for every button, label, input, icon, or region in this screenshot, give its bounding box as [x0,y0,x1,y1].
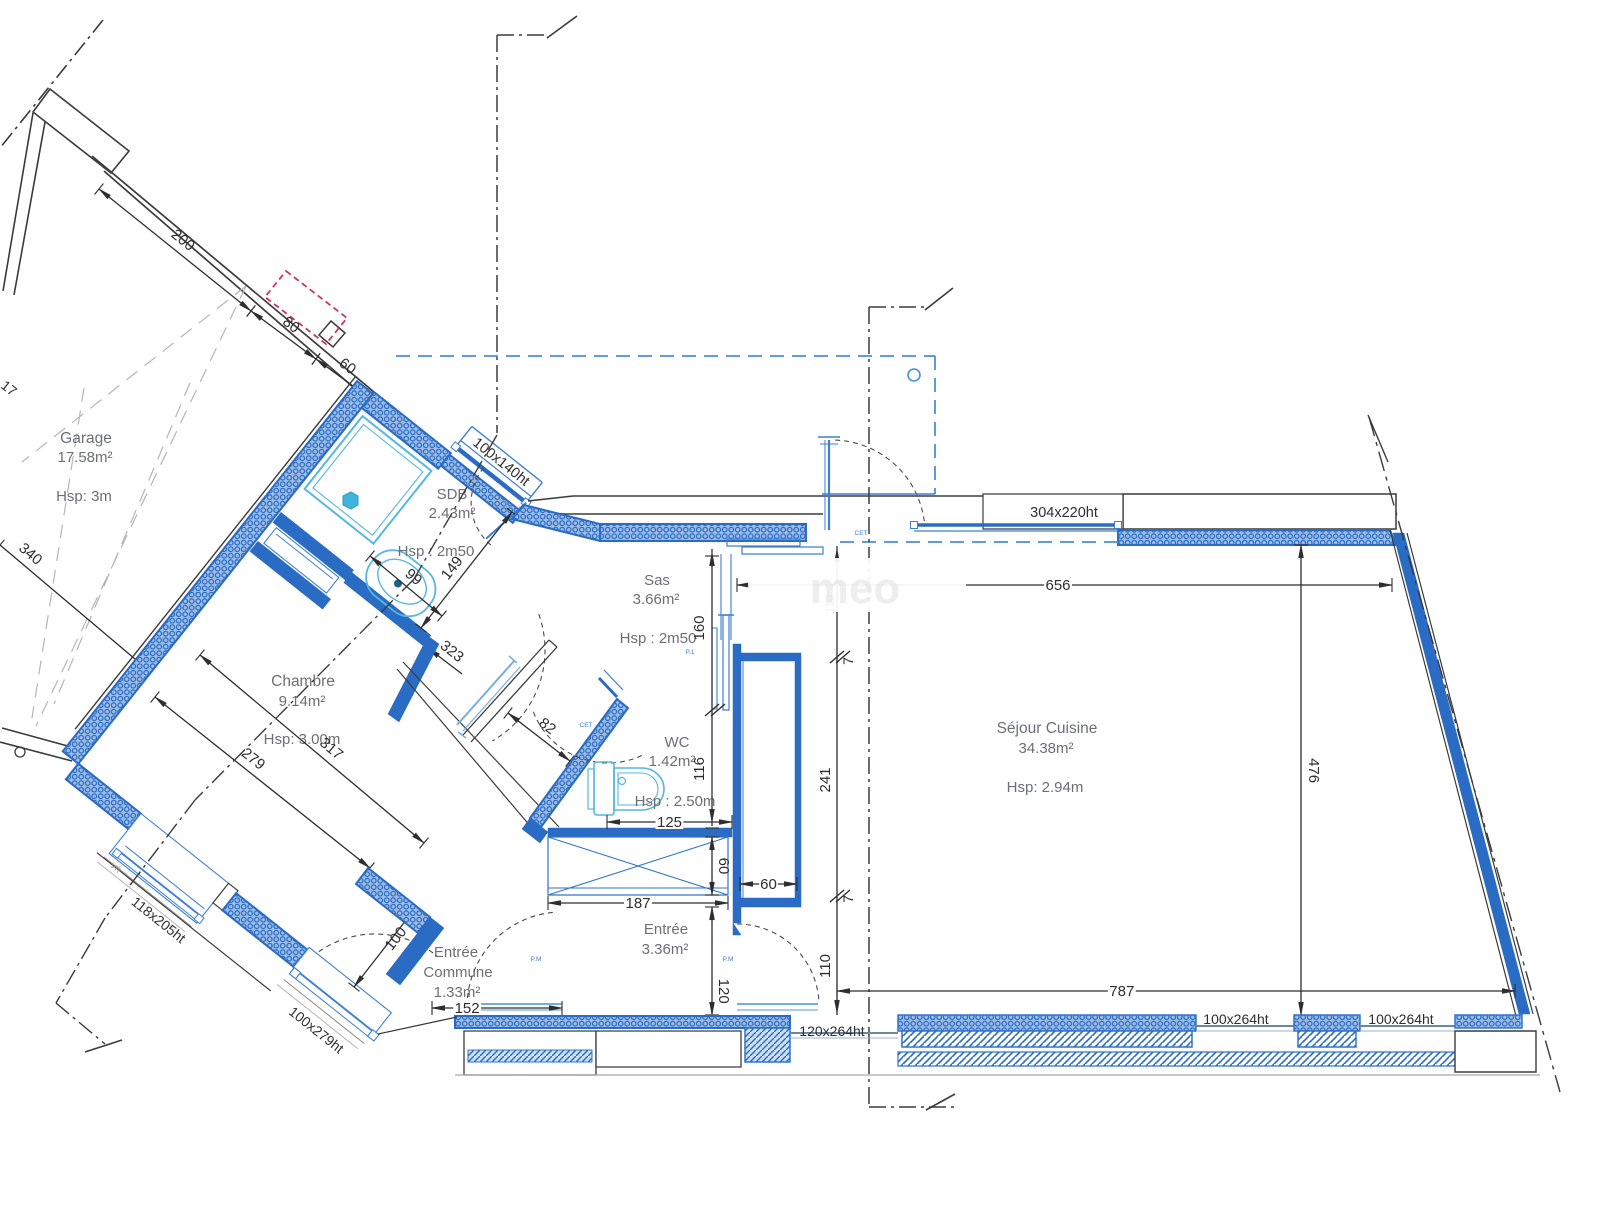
svg-text:Entrée: Entrée [434,944,478,961]
svg-text:17.58m²: 17.58m² [57,449,112,466]
svg-text:116: 116 [691,757,708,781]
svg-text:100x264ht: 100x264ht [1368,1011,1434,1027]
svg-text:60: 60 [715,858,732,875]
svg-text:Hsp : 2m50: Hsp : 2m50 [398,543,475,560]
svg-text:60: 60 [760,876,777,893]
svg-text:7: 7 [840,657,856,665]
svg-text:Hsp: 2.94m: Hsp: 2.94m [1007,779,1084,796]
svg-text:P.M: P.M [723,956,734,963]
svg-text:241: 241 [817,767,834,792]
svg-text:304x220ht: 304x220ht [1030,505,1098,521]
svg-text:Hsp : 2.50m: Hsp : 2.50m [635,793,716,810]
svg-text:Hsp: 3m: Hsp: 3m [56,488,112,505]
svg-text:WC: WC [665,734,690,751]
svg-text:P.M: P.M [531,956,542,963]
svg-text:120: 120 [715,979,732,1004]
svg-text:187: 187 [625,895,650,912]
svg-text:Séjour Cuisine: Séjour Cuisine [997,720,1098,737]
svg-text:34.38m²: 34.38m² [1018,740,1073,757]
svg-text:125: 125 [657,814,682,831]
svg-text:476: 476 [1305,758,1322,783]
svg-text:Chambre: Chambre [271,673,335,690]
svg-text:3.66m²: 3.66m² [633,591,680,608]
svg-text:Garage: Garage [60,430,112,447]
svg-text:152: 152 [455,1000,480,1017]
svg-text:Commune: Commune [423,964,492,981]
svg-text:656: 656 [1045,577,1070,594]
svg-text:787: 787 [1109,983,1134,1000]
svg-text:9.14m²: 9.14m² [279,693,326,710]
svg-text:CET: CET [855,530,868,537]
svg-text:CET: CET [580,722,593,729]
svg-text:meo: meo [810,564,900,613]
svg-text:7: 7 [840,895,856,903]
svg-text:1.33m²: 1.33m² [434,984,481,1001]
svg-text:Entrée: Entrée [644,921,688,938]
svg-text:P.1: P.1 [686,649,695,656]
svg-text:160: 160 [691,615,708,640]
svg-text:Sas: Sas [644,572,670,589]
svg-text:120x264ht: 120x264ht [799,1023,865,1039]
svg-text:100x264ht: 100x264ht [1203,1011,1269,1027]
svg-text:Hsp : 2m50: Hsp : 2m50 [620,630,697,647]
svg-text:3.36m²: 3.36m² [642,941,689,958]
svg-text:1.42m²: 1.42m² [649,753,696,770]
svg-text:110: 110 [817,954,834,978]
